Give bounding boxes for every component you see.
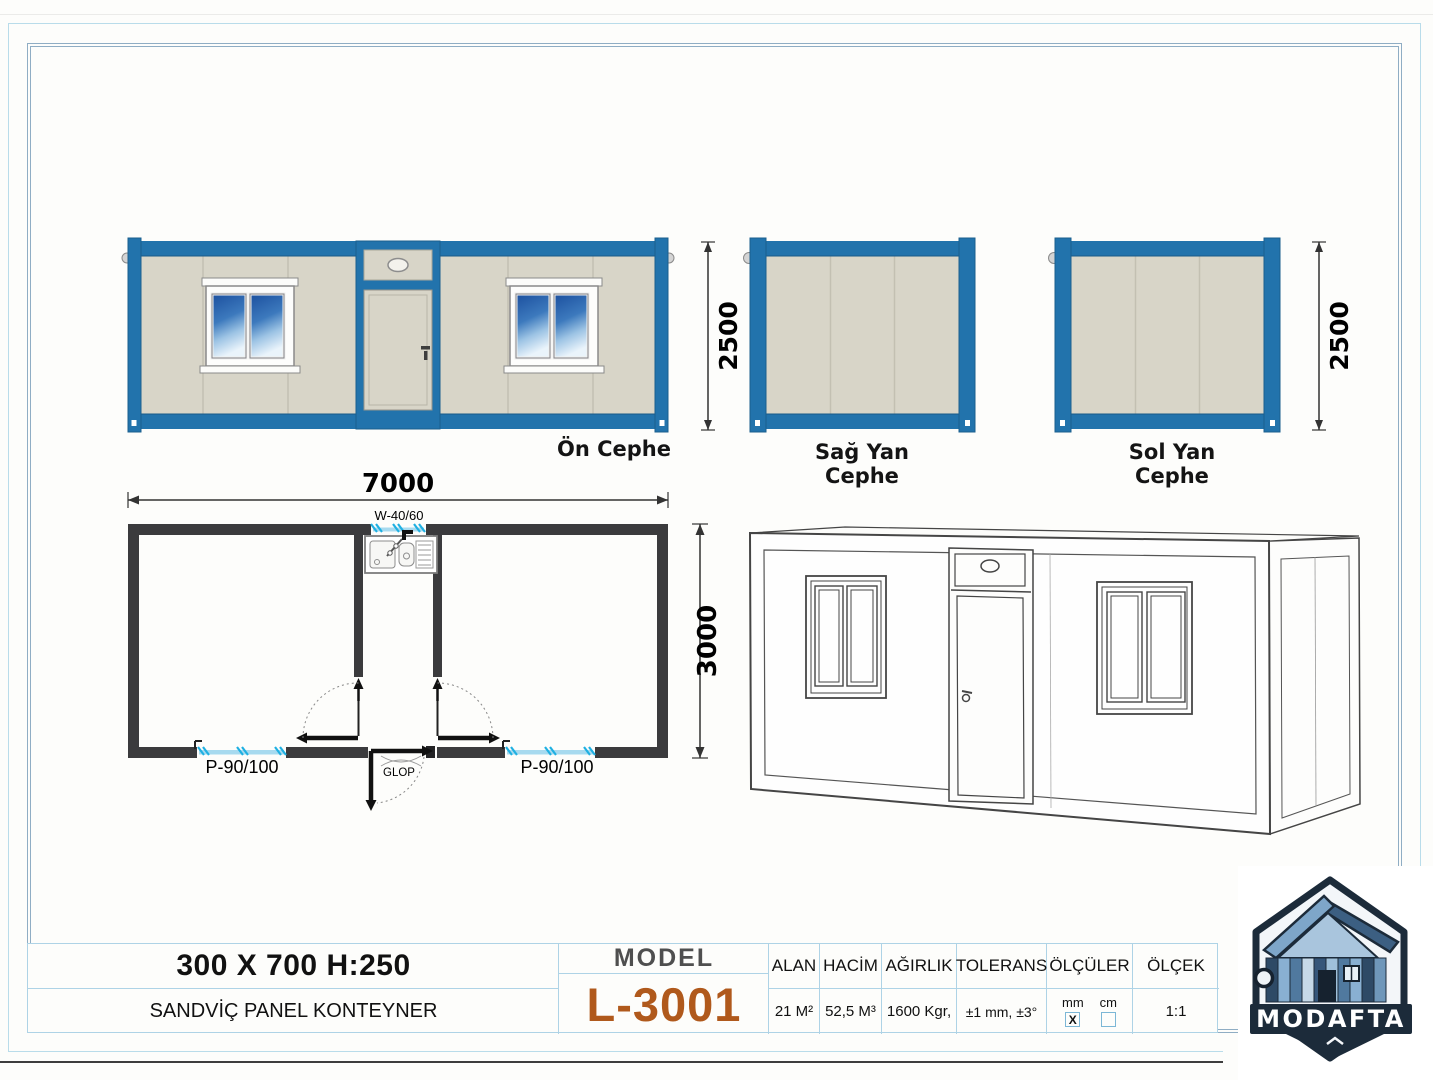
right-side-elevation-drawing — [750, 238, 975, 432]
logo-door-icon — [1318, 970, 1336, 1002]
plan-left-window-label: P-90/100 — [205, 757, 278, 777]
unit-cm-checkbox — [1101, 1012, 1116, 1027]
front-window-right — [504, 278, 604, 373]
unit-cm-label: cm — [1100, 996, 1117, 1010]
top-faint-line — [0, 14, 1433, 15]
logo-brand-text: MODAFTA — [1256, 1005, 1406, 1033]
model-section: MODEL L-3001 — [559, 944, 769, 1034]
spec-header: ÖLÇÜLER — [1047, 944, 1132, 989]
spec-header: ÖLÇEK — [1133, 944, 1219, 989]
left-side-view-label: Sol Yan Cephe — [1092, 440, 1252, 488]
spec-value: 21 M² — [769, 989, 819, 1034]
spec-header: HACİM — [820, 944, 881, 989]
spec-col-olculer: ÖLÇÜLER mm X cm — [1047, 944, 1133, 1034]
spec-table: ALAN 21 M² HACİM 52,5 M³ AĞIRLIK 1600 Kg… — [769, 944, 1219, 1034]
spec-col-agirlik: AĞIRLIK 1600 Kgr, — [882, 944, 957, 1034]
spec-col-olcek: ÖLÇEK 1:1 — [1133, 944, 1219, 1034]
spec-col-hacim: HACİM 52,5 M³ — [820, 944, 882, 1034]
front-view-label: Ön Cephe — [549, 437, 679, 461]
door-vent-icon — [388, 259, 408, 272]
modafta-logo-icon: MODAFTA — [1238, 866, 1433, 1080]
plan-sink-unit — [365, 530, 437, 573]
model-label: MODEL — [559, 944, 769, 974]
spec-header: AĞIRLIK — [882, 944, 956, 989]
bottom-dark-line — [0, 1061, 1223, 1063]
left-side-height-dimension: 2500 — [1310, 236, 1380, 436]
spec-col-tolerans: TOLERANS ±1 mm, ±3° — [957, 944, 1047, 1034]
perspective-door — [949, 548, 1033, 804]
front-window-left — [200, 278, 300, 373]
unit-mm-checkbox: X — [1065, 1012, 1080, 1027]
plan-right-window-label: P-90/100 — [520, 757, 593, 777]
spec-value: 1600 Kgr, — [882, 989, 956, 1034]
spec-header: ALAN — [769, 944, 819, 989]
front-door — [356, 241, 440, 429]
floor-plan-drawing: 7000 W-40/60 — [115, 470, 745, 835]
product-name: SANDVİÇ PANEL KONTEYNER — [28, 989, 559, 1034]
size-title: 300 X 700 H:250 — [28, 944, 559, 989]
plan-top-window-label: W-40/60 — [375, 508, 424, 523]
company-logo: MODAFTA — [1238, 866, 1433, 1080]
plan-width-dimension: 7000 — [128, 470, 668, 508]
spec-value: 1:1 — [1133, 989, 1219, 1034]
side-height-dim-text: 2500 — [1325, 301, 1354, 371]
plan-partition-left — [354, 535, 363, 677]
title-block: 300 X 700 H:250 SANDVİÇ PANEL KONTEYNER … — [27, 943, 1218, 1033]
logo-porthole-icon — [1256, 970, 1273, 987]
outer-page-border-bottom — [8, 1051, 1223, 1052]
spec-header: TOLERANS — [957, 944, 1046, 989]
model-value: L-3001 — [559, 974, 769, 1034]
plan-interior-door-left — [296, 678, 364, 744]
door-handle-icon — [421, 346, 430, 350]
front-height-dim-text: 2500 — [714, 301, 743, 371]
spec-value: 52,5 M³ — [820, 989, 881, 1034]
left-side-elevation-drawing — [1055, 238, 1280, 432]
unit-cm: cm — [1100, 996, 1117, 1027]
perspective-3d-drawing — [745, 510, 1405, 845]
unit-mm: mm X — [1062, 996, 1084, 1027]
spec-col-alan: ALAN 21 M² — [769, 944, 820, 1034]
plan-door-label: GLOP — [383, 767, 415, 779]
plan-interior-door-right — [433, 678, 501, 744]
title-block-left-section: 300 X 700 H:250 SANDVİÇ PANEL KONTEYNER — [28, 944, 559, 1034]
front-elevation-drawing — [128, 238, 668, 432]
right-side-view-label: Sağ Yan Cephe — [787, 440, 937, 488]
plan-depth-dim-text: 3000 — [693, 605, 723, 677]
spec-value: ±1 mm, ±3° — [957, 989, 1046, 1034]
unit-mm-label: mm — [1062, 996, 1084, 1010]
plan-width-dim-text: 7000 — [362, 470, 434, 499]
plan-depth-dimension: 3000 — [692, 524, 723, 758]
drawing-sheet: 2500 Ön Cephe Sağ Yan Cephe Sol Yan — [0, 0, 1433, 1080]
